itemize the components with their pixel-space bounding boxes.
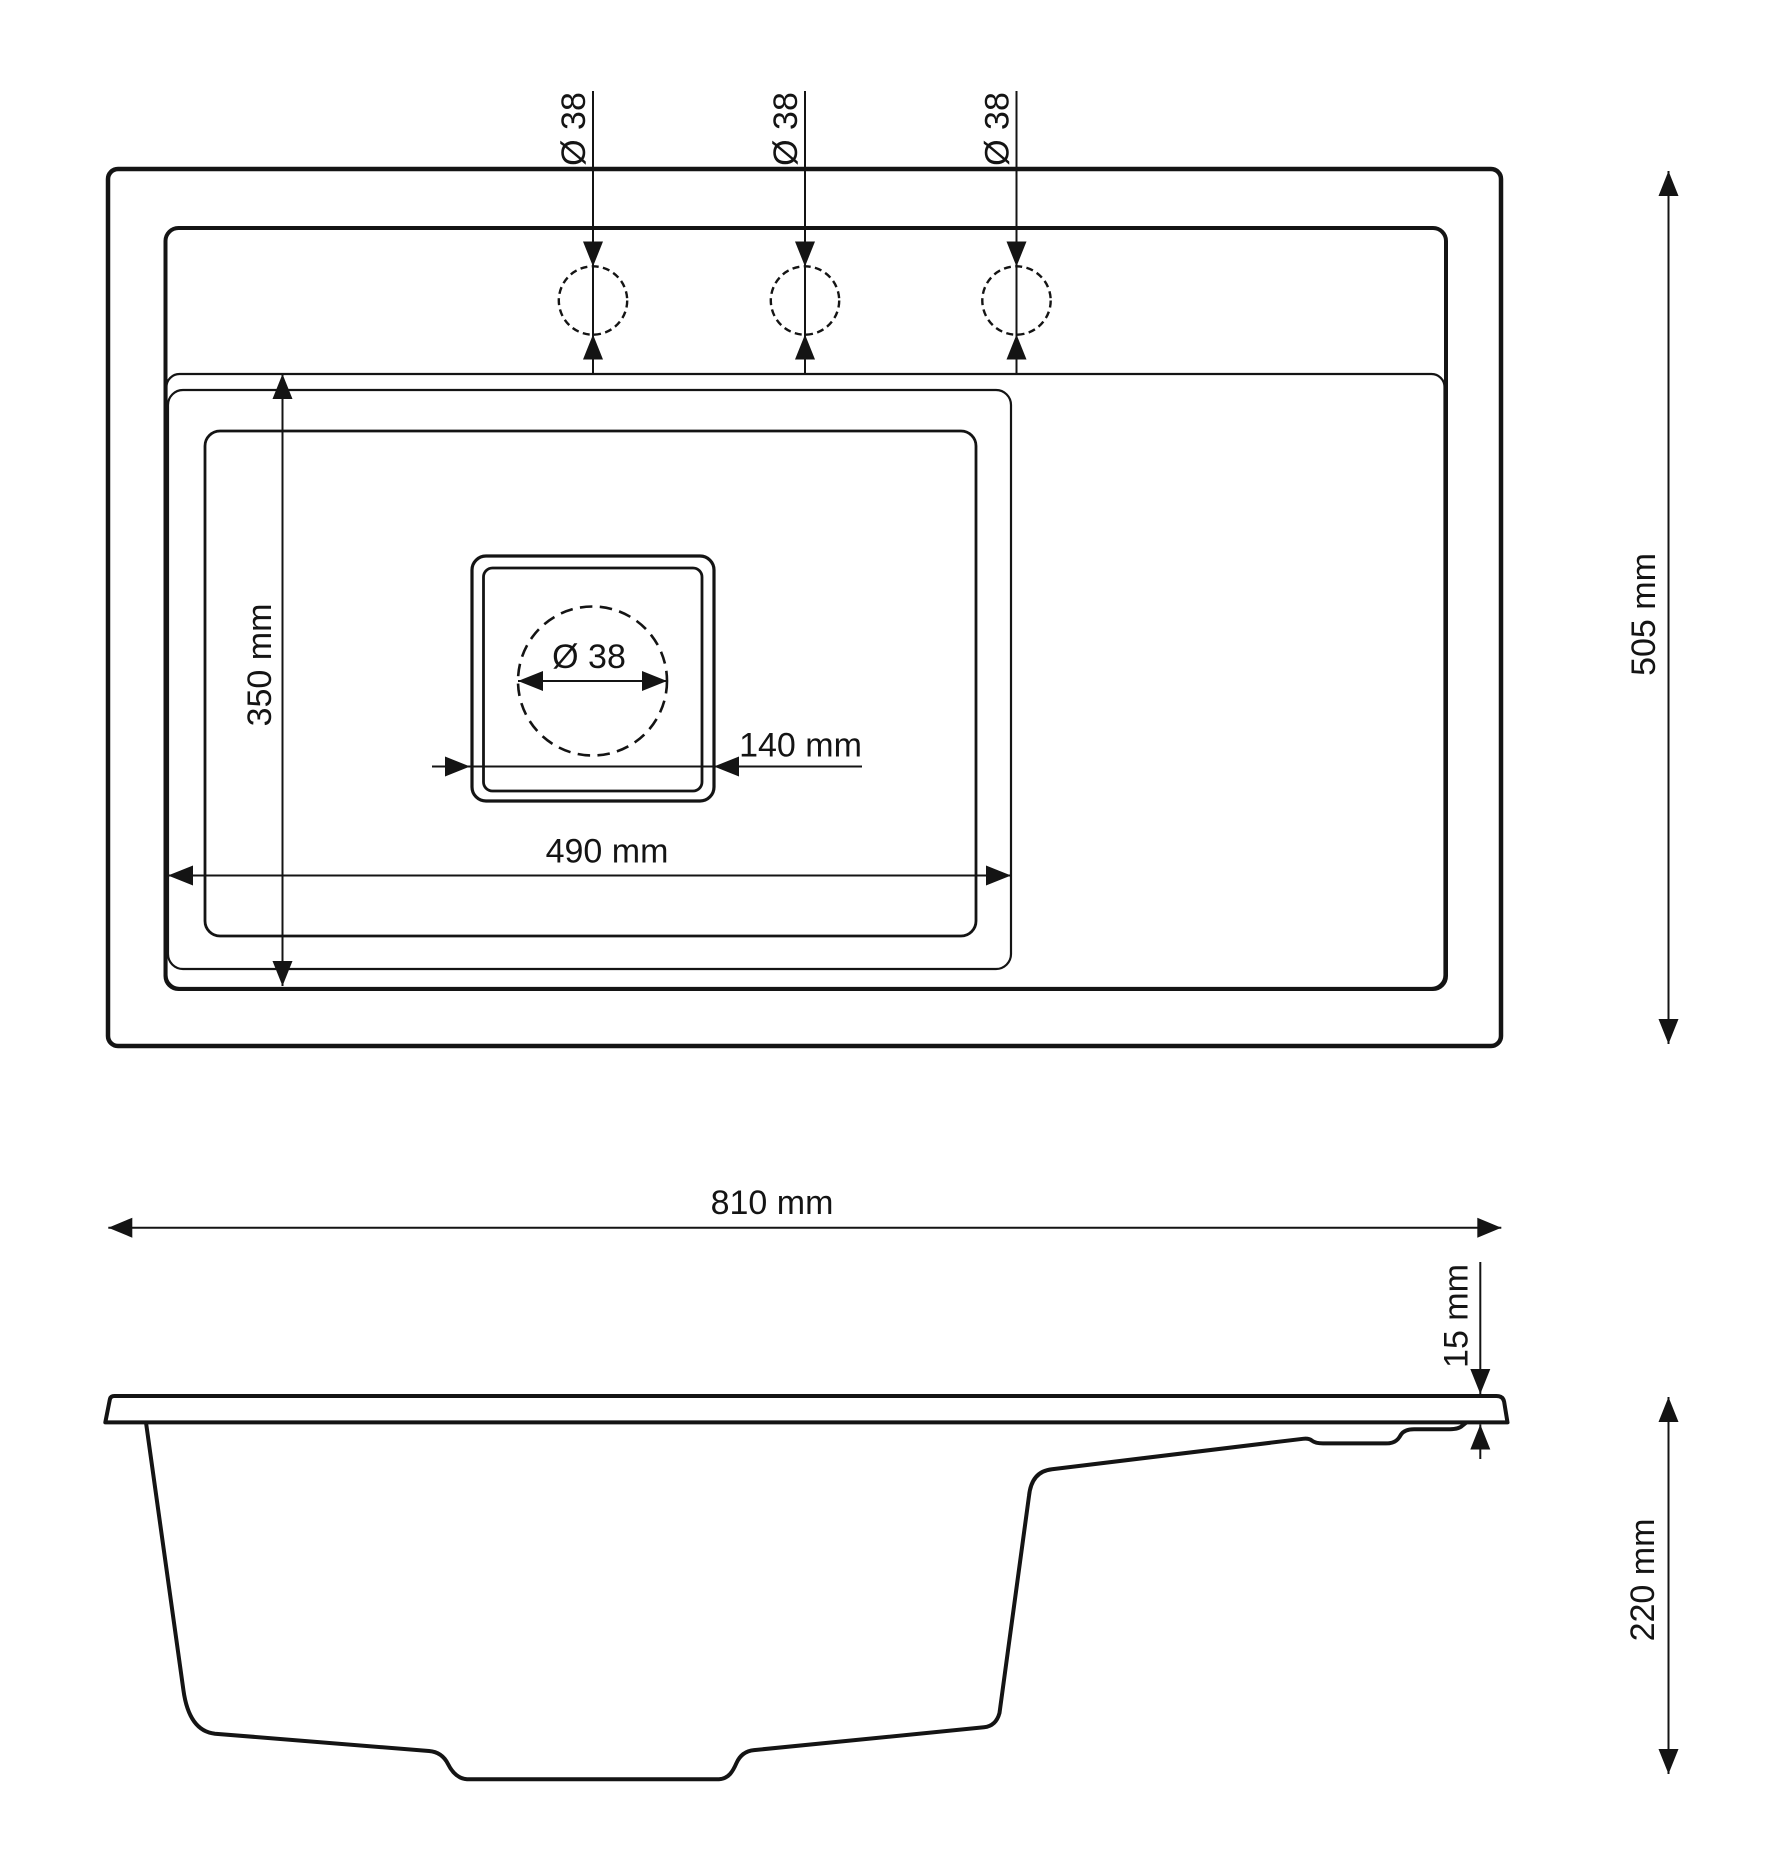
svg-text:Ø 38: Ø 38 (552, 638, 626, 676)
svg-text:220 mm: 220 mm (1624, 1519, 1662, 1642)
svg-text:Ø 38: Ø 38 (555, 92, 593, 166)
svg-text:505 mm: 505 mm (1625, 553, 1663, 676)
svg-text:Ø 38: Ø 38 (767, 92, 805, 166)
svg-text:Ø 38: Ø 38 (979, 92, 1017, 166)
svg-text:350 mm: 350 mm (241, 604, 279, 727)
svg-text:15 mm: 15 mm (1438, 1264, 1476, 1368)
svg-text:810 mm: 810 mm (711, 1184, 834, 1222)
svg-text:140 mm: 140 mm (739, 727, 862, 765)
svg-text:490 mm: 490 mm (546, 833, 669, 871)
